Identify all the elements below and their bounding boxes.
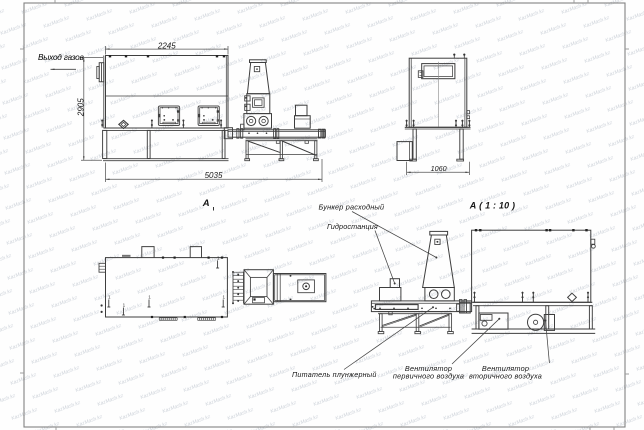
svg-text:Гидростанция: Гидростанция — [327, 222, 378, 231]
svg-text:Выход газов: Выход газов — [38, 52, 85, 62]
svg-text:Питатель плунжерный: Питатель плунжерный — [292, 371, 377, 379]
svg-text:5035: 5035 — [205, 171, 223, 180]
svg-text:А: А — [202, 198, 210, 209]
svg-text:Бункер расходный: Бункер расходный — [319, 203, 385, 212]
svg-text:первичного воздуха: первичного воздуха — [393, 372, 464, 381]
svg-text:вторичного воздуха: вторичного воздуха — [469, 372, 542, 381]
svg-text:2245: 2245 — [157, 41, 176, 50]
svg-text:А ( 1 : 10 ): А ( 1 : 10 ) — [469, 201, 515, 211]
svg-text:1060: 1060 — [431, 164, 447, 173]
svg-text:2905: 2905 — [76, 98, 85, 117]
